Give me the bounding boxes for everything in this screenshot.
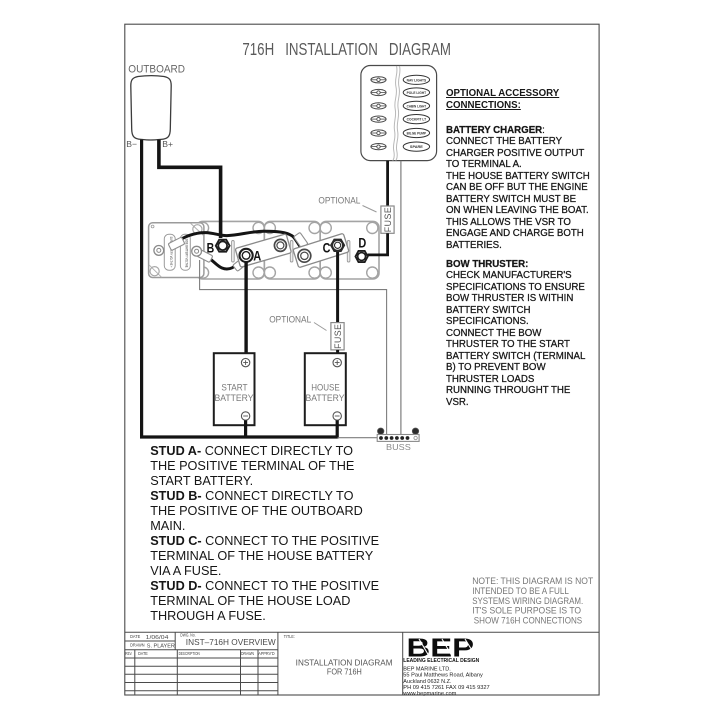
svg-text:55 Paul Matthews Road, Albany: 55 Paul Matthews Road, Albany [403,673,483,679]
svg-text:DRAWN: DRAWN [241,651,254,656]
svg-text:DATE: DATE [130,634,140,639]
svg-text:OPTIONAL: OPTIONAL [318,196,360,206]
svg-text:POLE LIGHT: POLE LIGHT [407,90,427,95]
svg-text:SHOW 716H CONNECTIONS: SHOW 716H CONNECTIONS [474,615,582,626]
svg-text:D: D [358,235,366,250]
svg-text:C: C [323,241,331,256]
svg-text:FOR 716H: FOR 716H [327,667,362,676]
svg-text:START: START [221,383,248,393]
svg-text:INST–716H OVERVIEW: INST–716H OVERVIEW [186,637,276,647]
svg-text:BATTERY: BATTERY [306,393,345,403]
svg-text:REV.: REV. [125,651,132,656]
svg-text:Auckland 0632 N.Z.: Auckland 0632 N.Z. [403,679,452,685]
svg-text:1 SIDE BATTERY VOLTHE: 1 SIDE BATTERY VOLTHE [184,237,188,268]
svg-text:TITLE:: TITLE: [284,634,295,639]
svg-text:DESCRIPTION: DESCRIPTION [179,651,200,656]
svg-text:NAV LIGHTS: NAV LIGHTS [407,77,427,82]
svg-text:BUSS: BUSS [386,442,411,452]
svg-text:FUSE: FUSE [383,207,393,232]
svg-text:B−: B− [126,139,137,149]
svg-text:BEP MARINE LTD.: BEP MARINE LTD. [403,666,451,672]
svg-text:HOUSE: HOUSE [311,383,340,393]
svg-text:SPARE: SPARE [410,144,423,149]
svg-text:DATE: DATE [138,651,148,656]
svg-text:716H INSTALLATION DIAGRAM: 716H INSTALLATION DIAGRAM [242,39,451,59]
svg-text:APPRV'D: APPRV'D [258,651,275,656]
svg-text:INSTALLATION DIAGRAM: INSTALLATION DIAGRAM [296,659,393,668]
svg-text:B+: B+ [162,139,173,149]
svg-text:FUSE: FUSE [333,323,343,348]
svg-text:OPTIONAL: OPTIONAL [269,314,311,324]
svg-text:LEADING ELECTRICAL DESIGN: LEADING ELECTRICAL DESIGN [403,658,479,664]
svg-text:S. PLAYER: S. PLAYER [147,643,175,649]
svg-text:COCKPIT LT: COCKPIT LT [407,117,427,122]
svg-text:OUTBOARD: OUTBOARD [128,64,185,76]
svg-text:www.bepmarine.com: www.bepmarine.com [402,691,457,697]
svg-text:A: A [253,249,261,264]
svg-text:1/06/04: 1/06/04 [146,635,169,641]
svg-text:CABIN LIGHT: CABIN LIGHT [407,103,427,108]
svg-text:BATTERY: BATTERY [215,393,254,403]
svg-text:BILGE PUMP: BILGE PUMP [407,131,427,136]
svg-text:B: B [207,240,215,255]
svg-text:DRAWN: DRAWN [130,643,145,648]
